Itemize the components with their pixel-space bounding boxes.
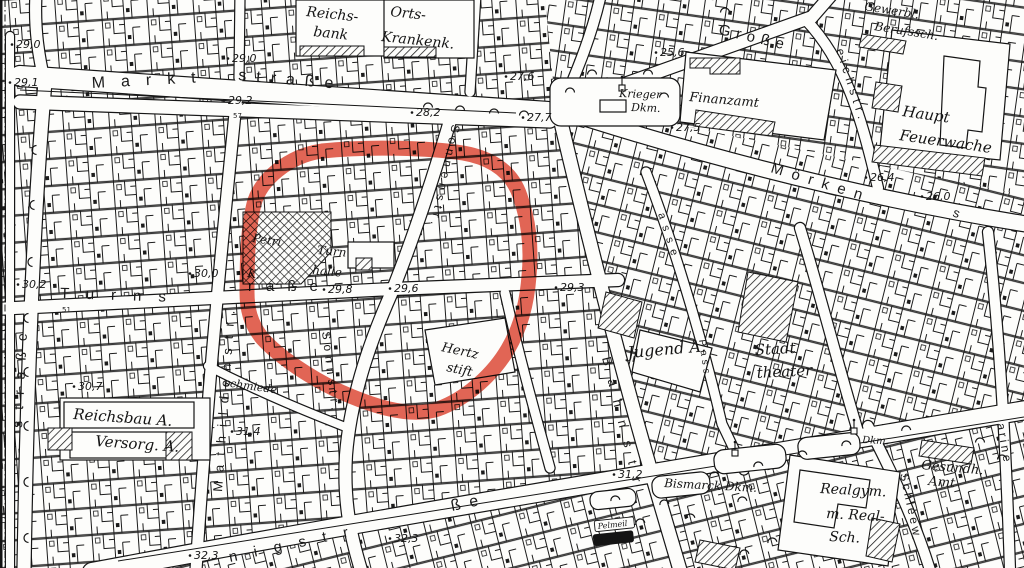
elevation-label: 29,0 (16, 38, 41, 51)
elevation-label: 31,2 (618, 468, 643, 481)
elevation-label: 29,3 (560, 281, 585, 294)
place-label-gesundheits-amt: Amt (927, 474, 957, 491)
reichsbau-wing-1 (48, 428, 72, 450)
place-label-turnhalle: halle (312, 263, 343, 280)
elevation-label: 30,2 (22, 278, 47, 291)
place-label-krieger-denkmal: Krieger (618, 87, 662, 102)
house-number-label: 51 (62, 306, 71, 314)
elevation-label: 26,4 (870, 171, 895, 184)
elevation-label: 27,7 (527, 111, 552, 124)
berufsschule-building-2 (872, 82, 902, 112)
place-label-stadttheater: Stadt (754, 339, 797, 359)
elevation-label: 29,8 (328, 283, 353, 296)
house-number-label: 57 (233, 112, 242, 120)
elevation-label: 31,4 (236, 425, 261, 438)
map-canvas: MarktstraßestraßeTurnsraßeSonnenstr.Sonn… (0, 0, 1024, 568)
place-label-realgymnasium-realschule: m. Real- (826, 506, 886, 525)
elevation-label: 28,2 (416, 106, 441, 119)
turnhalle-annex (356, 258, 372, 270)
street-label-turnstrasse-part2: raße (248, 278, 331, 295)
elevation-label: 32,3 (194, 549, 219, 562)
elevation-label: 30,7 (78, 380, 103, 393)
elevation-label: 29,2 (228, 94, 253, 107)
elevation-label: 30,0 (194, 267, 219, 280)
place-label-turnhalle: Turn (317, 243, 347, 259)
elevation-label: 29,0 (232, 52, 257, 65)
elevation-label: 32,3 (394, 532, 419, 545)
elevation-label: 27,5 (676, 121, 701, 134)
elevation-label: 26,0 (926, 190, 951, 203)
place-label-denkmal: Dkm. (861, 435, 889, 447)
elevation-label: 29,1 (14, 76, 39, 89)
elevation-label: 29,6 (394, 282, 419, 295)
scan-edge-artifact (0, 0, 3, 568)
elevation-label: 25,6 (660, 46, 685, 59)
place-label-stadttheater: theater (756, 361, 813, 382)
elevation-label: 27,6 (510, 70, 535, 83)
reichsbank-building (300, 46, 364, 56)
place-label-krieger-denkmal: Dkm. (630, 101, 661, 115)
city-map-svg: MarktstraßestraßeTurnsraßeSonnenstr.Sonn… (0, 0, 1024, 568)
place-label-realgymnasium-realschule: Sch. (829, 529, 861, 547)
